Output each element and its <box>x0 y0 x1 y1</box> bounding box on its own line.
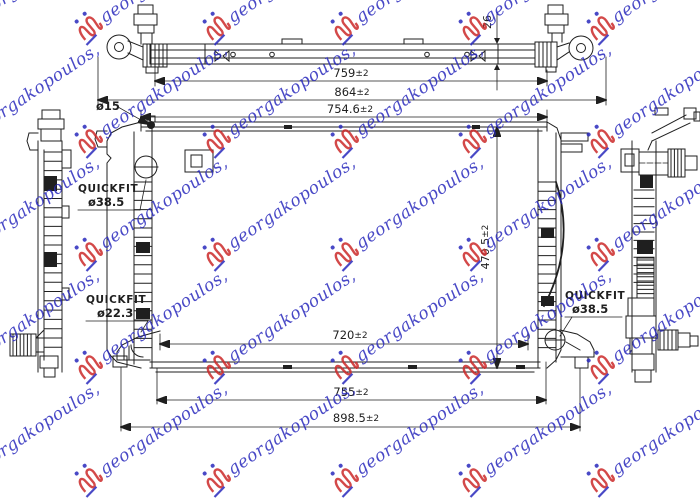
bottom-right-bracket <box>545 330 594 368</box>
dimension-core-depth: 26 <box>481 12 500 90</box>
top-view-left-fitting <box>107 5 167 73</box>
left-side-hose <box>10 330 44 356</box>
svg-text:755±2: 755±2 <box>333 385 368 399</box>
callout-quickfit-left-upper: QUICKFIT ø38.5 <box>78 180 146 210</box>
watermark-logo-icon <box>453 459 492 499</box>
svg-text:ø22.3: ø22.3 <box>97 306 133 320</box>
front-left-tank <box>95 122 213 368</box>
watermark-logo-icon <box>325 459 364 499</box>
callout-pipe-diameter: ø15 <box>96 99 148 124</box>
page: { "watermark": { "text": "georgakopoulos… <box>0 0 700 433</box>
radiator-technical-drawing: 759±2 864±2 754.6±2 26 <box>0 0 700 433</box>
svg-text:QUICKFIT: QUICKFIT <box>86 294 146 306</box>
drain-valve-icon <box>471 51 485 61</box>
svg-text:898.5±2: 898.5±2 <box>333 411 379 425</box>
svg-text:ø15: ø15 <box>96 99 120 113</box>
dimension-core-height: 470.5±2 <box>479 127 497 368</box>
drain-valve-icon <box>215 51 229 61</box>
dimension-top-bar-length: 759±2 <box>155 66 547 86</box>
right-side-lower-fitting <box>626 298 698 354</box>
svg-text:QUICKFIT: QUICKFIT <box>565 290 625 302</box>
left-side-view <box>10 110 71 377</box>
dimension-core-top-width: 754.6±2 <box>141 102 547 122</box>
top-view <box>107 5 593 73</box>
svg-text:26: 26 <box>481 15 494 29</box>
callout-quickfit-right-lower: QUICKFIT ø38.5 <box>560 290 625 336</box>
svg-text:754.6±2: 754.6±2 <box>327 102 373 116</box>
top-view-right-fitting <box>535 5 593 72</box>
svg-text:ø38.5: ø38.5 <box>88 195 124 209</box>
watermark-logo-icon <box>69 459 108 499</box>
svg-text:ø38.5: ø38.5 <box>572 302 608 316</box>
right-side-view <box>621 108 700 382</box>
svg-text:759±2: 759±2 <box>333 66 368 80</box>
dimension-core-bottom-width: 720±2 <box>160 328 528 350</box>
svg-text:720±2: 720±2 <box>332 328 367 342</box>
watermark-logo-icon <box>581 459 620 499</box>
svg-text:470.5±2: 470.5±2 <box>479 225 492 270</box>
svg-text:QUICKFIT: QUICKFIT <box>78 183 138 195</box>
watermark-logo-icon <box>197 459 236 499</box>
svg-text:864±2: 864±2 <box>334 85 369 99</box>
dimension-overall-bottom-width: 898.5±2 <box>121 367 580 431</box>
